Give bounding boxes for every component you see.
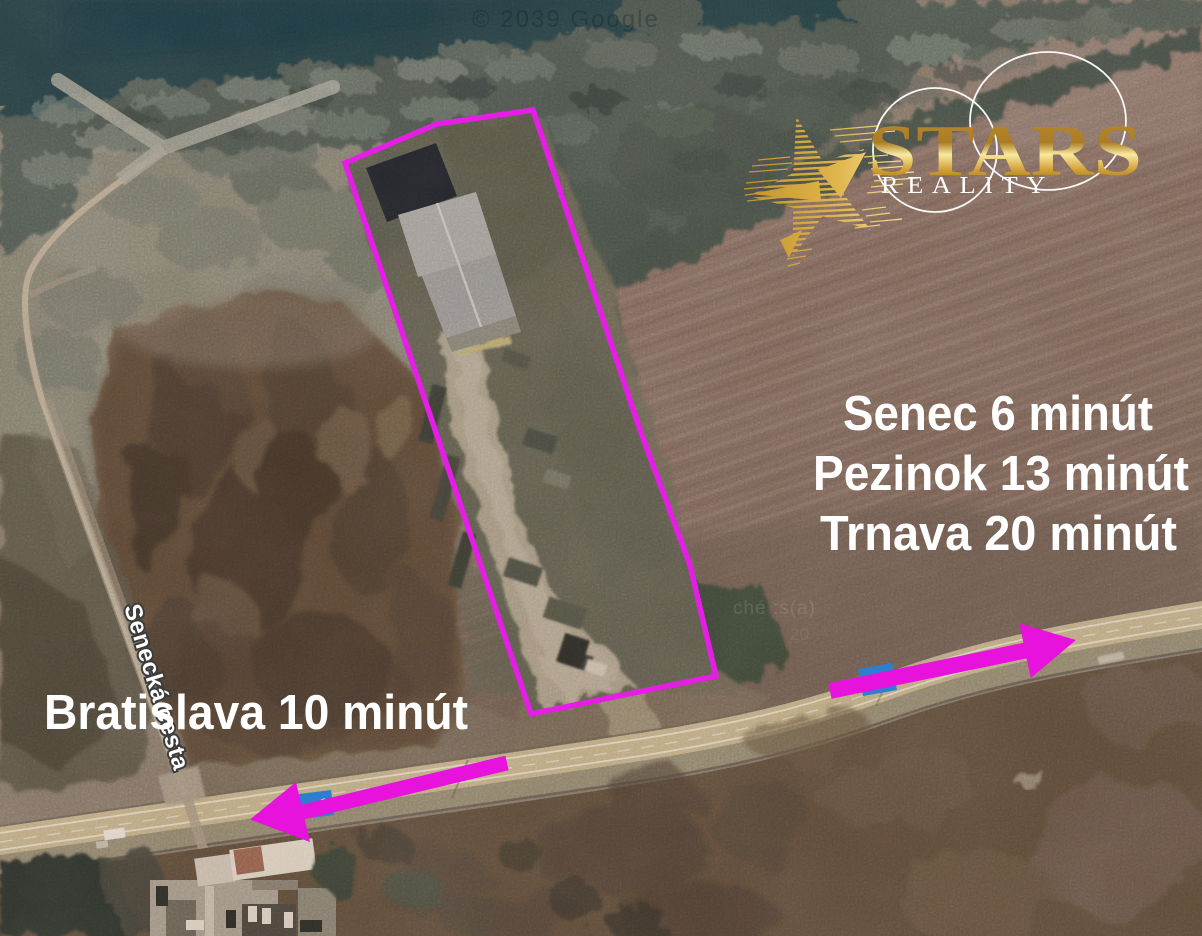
svg-text:20: 20	[790, 625, 809, 644]
svg-text:Senec 6 minút: Senec 6 minút	[843, 387, 1153, 441]
svg-text:© 2039 Google: © 2039 Google	[472, 6, 660, 33]
svg-text:Pezinok 13 minút: Pezinok 13 minút	[813, 447, 1189, 501]
svg-text:Bratislava 10 minút: Bratislava 10 minút	[44, 686, 468, 740]
svg-text:REALITY: REALITY	[881, 172, 1054, 199]
svg-text:ché :s(a): ché :s(a)	[733, 598, 816, 619]
svg-text:Trnava 20 minút: Trnava 20 minút	[820, 507, 1177, 561]
